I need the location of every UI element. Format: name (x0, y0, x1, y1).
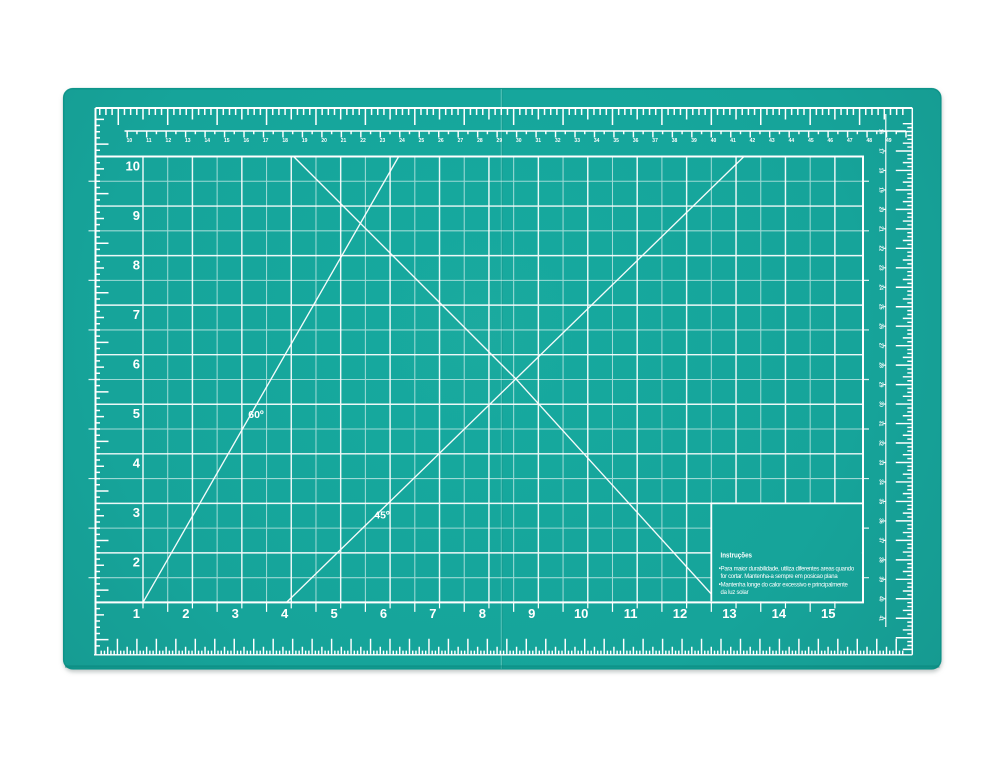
svg-text:40: 40 (711, 138, 717, 144)
svg-text:7: 7 (429, 606, 436, 621)
svg-text:28: 28 (878, 362, 884, 368)
svg-text:19: 19 (878, 187, 884, 193)
svg-text:42: 42 (750, 138, 756, 144)
svg-text:11: 11 (624, 606, 638, 621)
svg-text:14: 14 (204, 138, 210, 144)
svg-text:27: 27 (878, 343, 884, 349)
svg-text:26: 26 (438, 138, 444, 144)
svg-text:39: 39 (691, 138, 697, 144)
svg-text:22: 22 (360, 138, 366, 144)
svg-text:8: 8 (133, 257, 140, 272)
svg-text:28: 28 (477, 138, 483, 144)
svg-text:32: 32 (555, 138, 561, 144)
svg-text:23: 23 (380, 138, 386, 144)
svg-text:32: 32 (878, 440, 884, 446)
svg-text:27: 27 (458, 138, 464, 144)
svg-text:•Para maior durabilidade, util: •Para maior durabilidade, utiliza difere… (719, 566, 855, 572)
svg-text:30: 30 (878, 401, 884, 407)
svg-text:25: 25 (419, 138, 425, 144)
svg-text:25: 25 (878, 304, 884, 310)
svg-text:45º: 45º (374, 510, 390, 522)
svg-text:44: 44 (789, 138, 795, 144)
svg-text:46: 46 (828, 138, 834, 144)
svg-text:6: 6 (380, 606, 387, 621)
svg-text:16: 16 (243, 138, 249, 144)
svg-text:2: 2 (133, 555, 140, 570)
svg-text:7: 7 (133, 307, 140, 322)
svg-text:15: 15 (224, 138, 230, 144)
svg-text:4: 4 (281, 606, 289, 621)
svg-text:23: 23 (878, 265, 884, 271)
svg-text:16: 16 (878, 129, 884, 135)
svg-text:•Mantenha longe do calor exces: •Mantenha longe do calor excessivo e pri… (719, 583, 849, 589)
svg-text:30: 30 (516, 138, 522, 144)
svg-text:18: 18 (878, 168, 884, 174)
svg-text:5: 5 (133, 406, 140, 421)
svg-text:29: 29 (497, 138, 503, 144)
svg-text:49: 49 (886, 138, 892, 144)
svg-text:37: 37 (652, 138, 658, 144)
svg-text:2: 2 (182, 606, 189, 621)
svg-text:37: 37 (878, 538, 884, 544)
svg-text:6: 6 (133, 357, 140, 372)
svg-text:24: 24 (878, 284, 884, 290)
svg-text:10: 10 (126, 158, 140, 173)
svg-text:34: 34 (878, 479, 884, 485)
svg-text:38: 38 (878, 557, 884, 563)
svg-text:3: 3 (133, 505, 140, 520)
svg-text:45: 45 (808, 138, 814, 144)
svg-text:33: 33 (878, 460, 884, 466)
svg-text:21: 21 (878, 226, 884, 232)
svg-text:36: 36 (878, 518, 884, 524)
svg-text:1: 1 (133, 606, 140, 621)
svg-text:22: 22 (878, 246, 884, 252)
svg-text:41: 41 (730, 138, 736, 144)
svg-text:17: 17 (263, 138, 269, 144)
svg-text:17: 17 (878, 148, 884, 154)
svg-text:31: 31 (878, 421, 884, 427)
svg-text:12: 12 (166, 138, 172, 144)
svg-text:5: 5 (330, 606, 337, 621)
svg-text:48: 48 (866, 138, 872, 144)
svg-text:8: 8 (479, 606, 486, 621)
svg-text:43: 43 (769, 138, 775, 144)
svg-text:33: 33 (574, 138, 580, 144)
svg-text:24: 24 (399, 138, 405, 144)
svg-text:35: 35 (613, 138, 619, 144)
svg-text:38: 38 (672, 138, 678, 144)
svg-text:21: 21 (341, 138, 347, 144)
svg-text:18: 18 (282, 138, 288, 144)
svg-text:13: 13 (185, 138, 191, 144)
svg-text:41: 41 (878, 615, 884, 621)
svg-text:20: 20 (321, 138, 327, 144)
svg-text:39: 39 (878, 577, 884, 583)
svg-text:Instruções: Instruções (721, 551, 753, 560)
svg-text:12: 12 (673, 606, 687, 621)
svg-text:36: 36 (633, 138, 639, 144)
svg-text:31: 31 (535, 138, 541, 144)
svg-text:4: 4 (133, 456, 141, 471)
svg-text:for cortar. Mantenha-a sempre: for cortar. Mantenha-a sempre em posicao… (721, 574, 839, 580)
svg-text:35: 35 (878, 499, 884, 505)
svg-text:9: 9 (528, 606, 535, 621)
svg-text:14: 14 (772, 606, 787, 621)
svg-text:10: 10 (574, 606, 588, 621)
svg-text:20: 20 (878, 207, 884, 213)
svg-text:3: 3 (232, 606, 239, 621)
svg-text:60º: 60º (248, 409, 264, 421)
svg-text:da luz solar: da luz solar (721, 590, 749, 596)
svg-text:9: 9 (133, 208, 140, 223)
svg-text:13: 13 (722, 606, 736, 621)
svg-text:26: 26 (878, 323, 884, 329)
svg-text:11: 11 (146, 138, 152, 144)
svg-text:47: 47 (847, 138, 853, 144)
svg-text:15: 15 (821, 606, 835, 621)
svg-text:19: 19 (302, 138, 308, 144)
svg-text:29: 29 (878, 382, 884, 388)
svg-text:10: 10 (127, 138, 133, 144)
svg-text:34: 34 (594, 138, 600, 144)
svg-text:40: 40 (878, 596, 884, 602)
